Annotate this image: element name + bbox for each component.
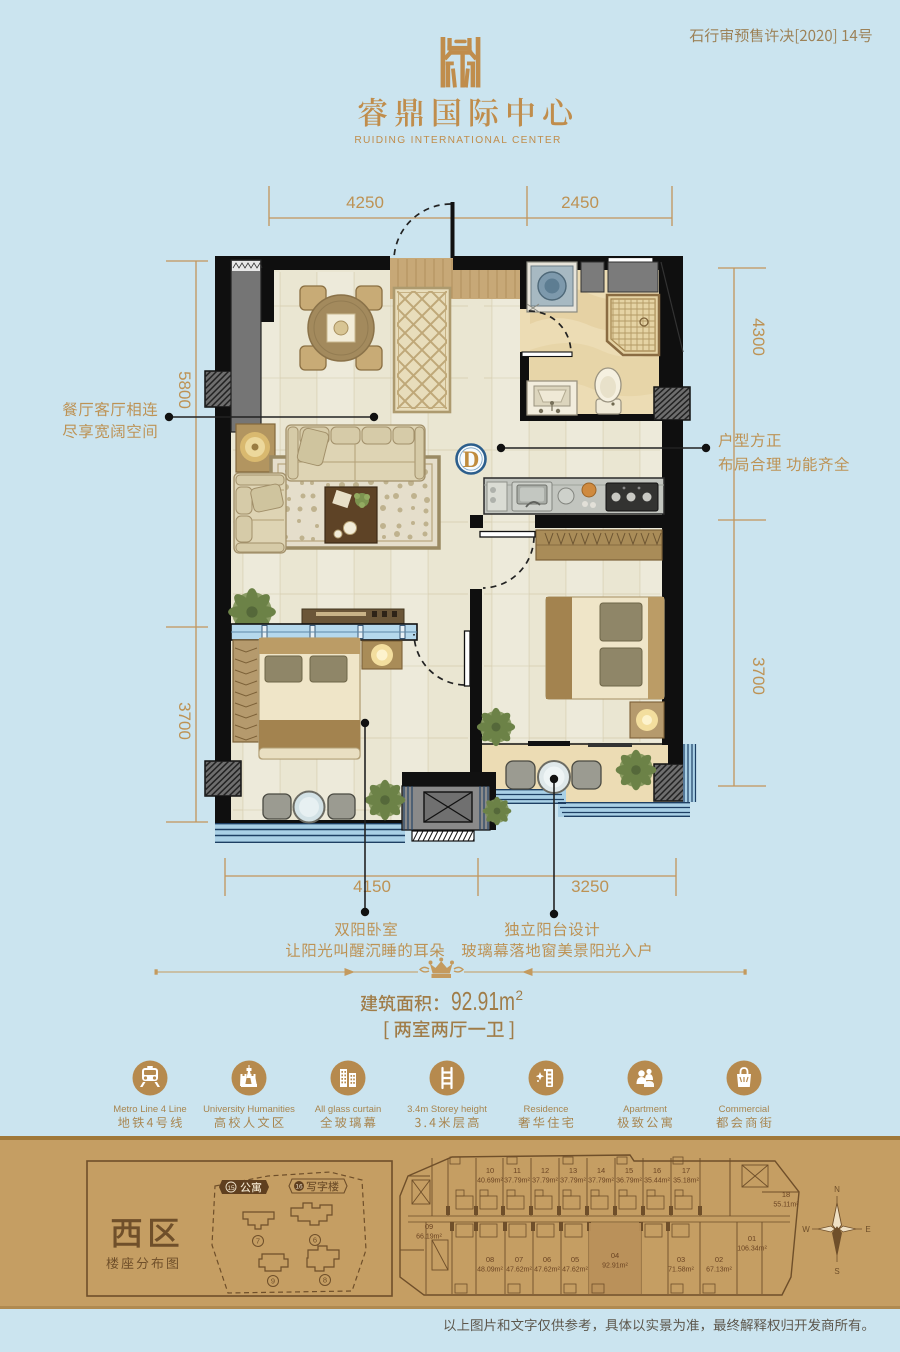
- svg-text:N: N: [834, 1185, 840, 1194]
- svg-text:3250: 3250: [571, 877, 609, 896]
- svg-text:3.4m Storey height: 3.4m Storey height: [407, 1104, 487, 1115]
- svg-text:36.79m²: 36.79m²: [616, 1178, 642, 1185]
- svg-text:37.79m²: 37.79m²: [588, 1178, 614, 1185]
- svg-text:All glass curtain: All glass curtain: [315, 1104, 382, 1115]
- svg-text:2450: 2450: [561, 193, 599, 212]
- svg-text:3700: 3700: [749, 657, 768, 695]
- svg-text:01: 01: [748, 1234, 756, 1243]
- svg-text:11: 11: [513, 1166, 521, 1175]
- svg-text:9: 9: [271, 1277, 275, 1286]
- svg-text:16: 16: [653, 1166, 661, 1175]
- svg-text:RUIDING INTERNATIONAL CENTER: RUIDING INTERNATIONAL CENTER: [354, 135, 561, 146]
- svg-text:Commercial: Commercial: [719, 1104, 770, 1115]
- svg-text:04: 04: [611, 1251, 619, 1260]
- svg-text:3700: 3700: [175, 702, 194, 740]
- svg-text:66.19m²: 66.19m²: [416, 1234, 442, 1241]
- svg-text:16: 16: [295, 1184, 303, 1191]
- svg-text:35.18m²: 35.18m²: [673, 1178, 699, 1185]
- svg-text:09: 09: [425, 1222, 433, 1231]
- svg-text:Apartment: Apartment: [623, 1104, 667, 1115]
- svg-text:13: 13: [569, 1166, 577, 1175]
- svg-text:02: 02: [715, 1255, 723, 1264]
- svg-text:03: 03: [677, 1255, 685, 1264]
- svg-text:W: W: [802, 1225, 810, 1234]
- svg-text:Metro Line 4 Line: Metro Line 4 Line: [113, 1104, 186, 1115]
- svg-text:08: 08: [486, 1255, 494, 1264]
- svg-text:17: 17: [682, 1166, 690, 1175]
- svg-text:12: 12: [541, 1166, 549, 1175]
- svg-text:4300: 4300: [749, 318, 768, 356]
- svg-text:67.13m²: 67.13m²: [706, 1267, 732, 1274]
- svg-text:37.79m²: 37.79m²: [504, 1178, 530, 1185]
- svg-text:06: 06: [543, 1255, 551, 1264]
- svg-text:15: 15: [625, 1166, 633, 1175]
- svg-text:S: S: [834, 1267, 839, 1276]
- svg-text:5800: 5800: [175, 371, 194, 409]
- svg-text:8: 8: [323, 1276, 327, 1285]
- svg-text:48.09m²: 48.09m²: [477, 1267, 503, 1274]
- svg-text:106.34m²: 106.34m²: [737, 1246, 767, 1253]
- svg-text:40.69m²: 40.69m²: [477, 1178, 503, 1185]
- svg-text:Residence: Residence: [524, 1104, 569, 1115]
- svg-text:37.79m²: 37.79m²: [560, 1178, 586, 1185]
- svg-text:05: 05: [571, 1255, 579, 1264]
- svg-text:35.44m²: 35.44m²: [644, 1178, 670, 1185]
- svg-text:15: 15: [227, 1185, 235, 1192]
- svg-text:14: 14: [597, 1166, 605, 1175]
- svg-text:6: 6: [313, 1236, 317, 1245]
- svg-text:University Humanities: University Humanities: [203, 1104, 295, 1115]
- svg-text:D: D: [463, 447, 480, 472]
- svg-text:4250: 4250: [346, 193, 384, 212]
- svg-text:2: 2: [516, 988, 524, 1003]
- svg-text:07: 07: [515, 1255, 523, 1264]
- svg-text:18: 18: [782, 1190, 790, 1199]
- svg-text:92.91m²: 92.91m²: [602, 1263, 628, 1270]
- svg-text:47.62m²: 47.62m²: [506, 1267, 532, 1274]
- svg-text:92.91m: 92.91m: [451, 986, 515, 1016]
- svg-text:71.58m²: 71.58m²: [668, 1267, 694, 1274]
- svg-text:10: 10: [486, 1166, 494, 1175]
- svg-text:55.11m²: 55.11m²: [773, 1202, 799, 1209]
- svg-text:47.62m²: 47.62m²: [534, 1267, 560, 1274]
- svg-text:E: E: [865, 1225, 870, 1234]
- svg-text:7: 7: [256, 1237, 260, 1246]
- svg-text:47.62m²: 47.62m²: [562, 1267, 588, 1274]
- svg-text:37.79m²: 37.79m²: [532, 1178, 558, 1185]
- svg-text:4150: 4150: [353, 877, 391, 896]
